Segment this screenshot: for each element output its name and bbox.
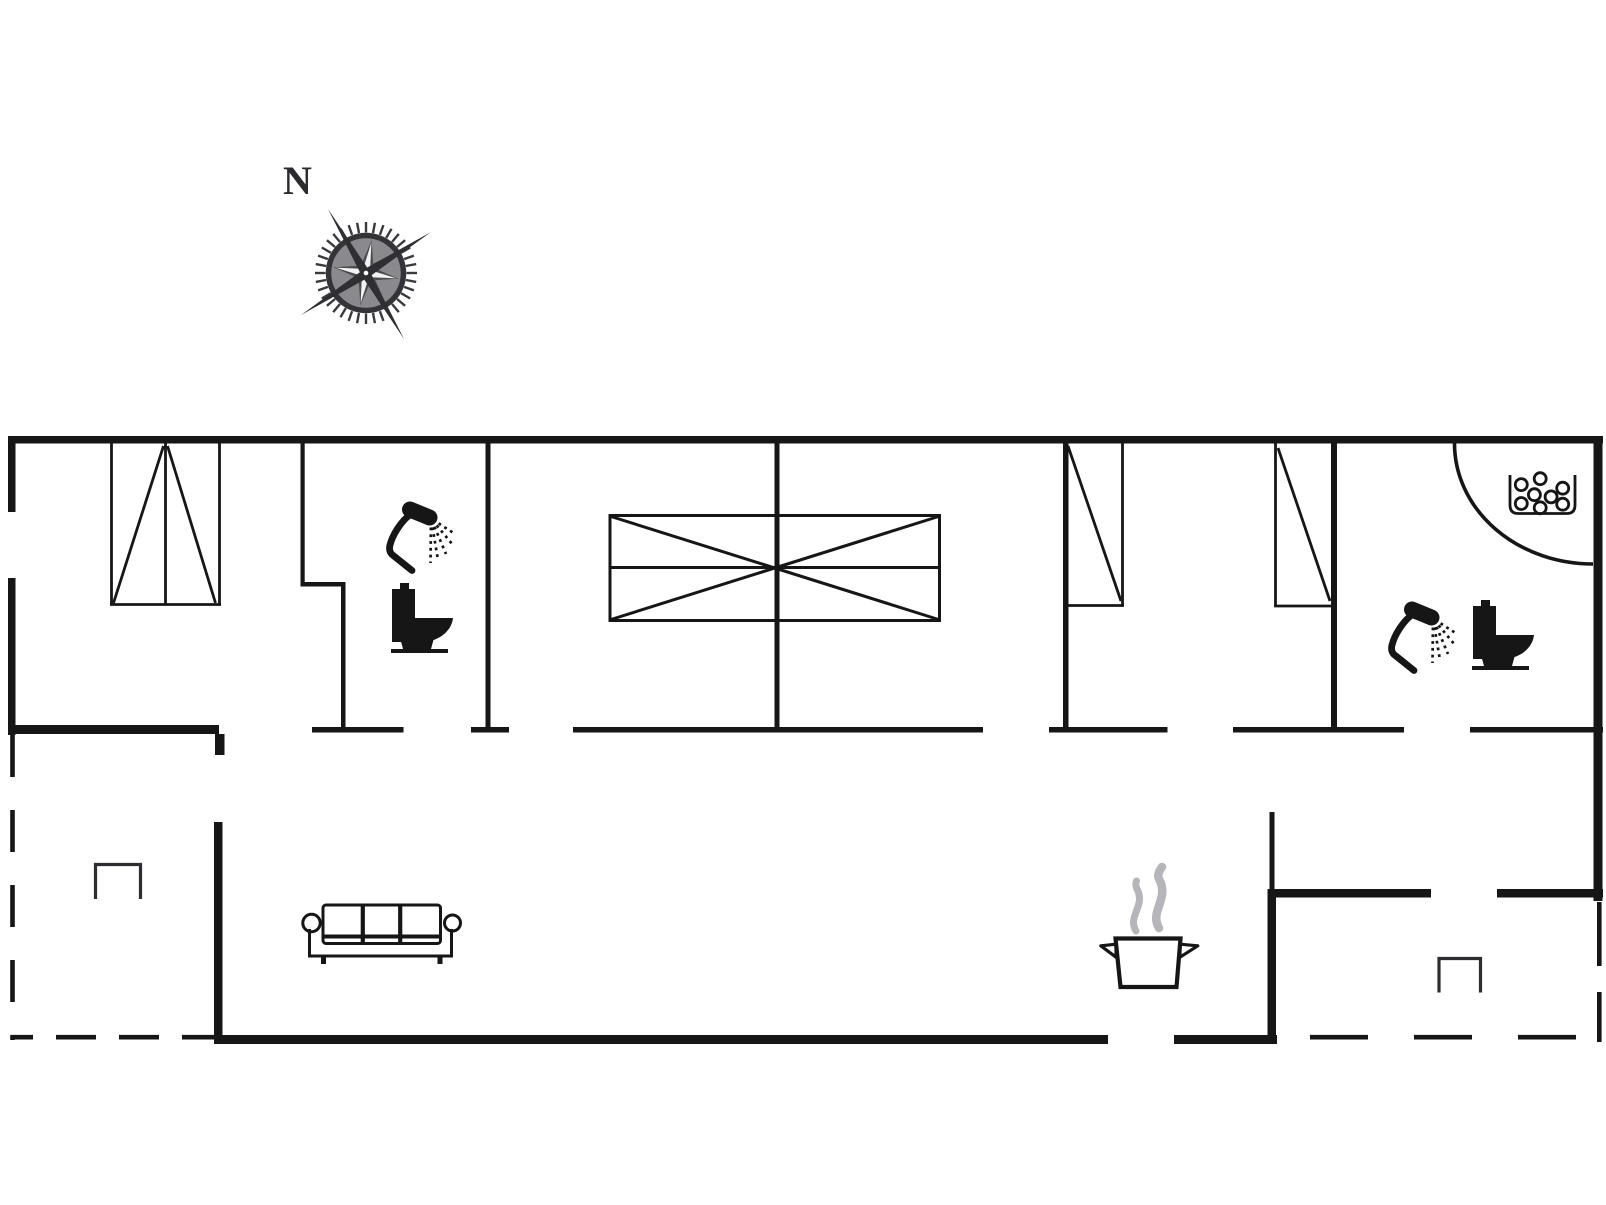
svg-text:N: N [283,158,312,203]
